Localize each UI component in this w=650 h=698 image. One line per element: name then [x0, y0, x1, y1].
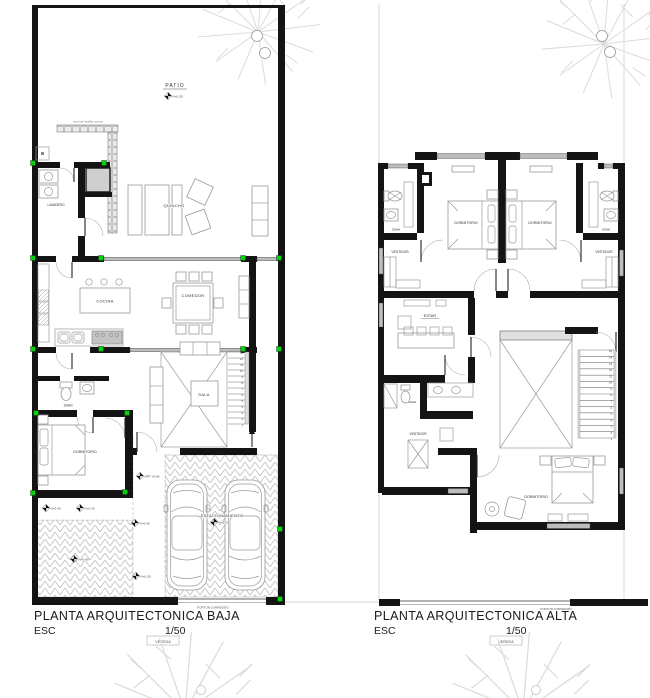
entry-walkway: [133, 437, 165, 597]
nightstand: [594, 456, 605, 465]
column-marker: [123, 490, 128, 495]
column-marker: [278, 597, 283, 602]
architectural-sheet: muro de ladrillo comun PATIO N+0.20 LAVA…: [0, 0, 650, 698]
column-marker: [31, 161, 36, 166]
window: [257, 257, 278, 261]
cabinet: [404, 300, 430, 306]
left-scale-value: 1/50: [165, 625, 186, 637]
chair: [189, 272, 199, 281]
chair: [162, 298, 171, 308]
tree-icon: [542, 0, 650, 99]
column-marker: [241, 256, 246, 261]
room-label-dormitorio-left: DORMITORIO: [454, 221, 477, 225]
toilet-tank: [401, 385, 410, 390]
room-label-sshh: SSHH: [64, 404, 74, 408]
column-marker: [99, 347, 104, 352]
void-parapet: [500, 331, 572, 340]
wall: [32, 5, 285, 8]
level-value: NPT +0.40: [145, 475, 160, 479]
stairs: 151413121110987654321: [580, 349, 614, 441]
level-value: N+0.40: [140, 522, 150, 526]
room-label-dormitorio-right: DORMITORIO: [528, 221, 551, 225]
column-marker: [31, 256, 36, 261]
level-marker-icon: [164, 92, 171, 99]
wall: [32, 5, 38, 605]
chair: [187, 179, 214, 206]
chair: [189, 325, 199, 334]
closet: [396, 280, 420, 288]
room-label-dormitorio-master: DORMITORIO: [524, 495, 547, 499]
brick-wall: [57, 125, 118, 132]
closet: [440, 428, 453, 441]
level-value: N+0.40: [51, 507, 61, 511]
bathroom-sink: [452, 387, 461, 394]
nightstand: [487, 250, 498, 259]
dresser: [548, 514, 562, 521]
round-table: [485, 502, 499, 516]
room-label-sala: SALA: [198, 392, 209, 397]
room-label-vestidor-right: VESTIDOR: [595, 250, 613, 254]
nightstand: [540, 456, 551, 465]
chair: [176, 325, 186, 334]
right-vereda-label: VEREDA: [498, 640, 514, 644]
level-value: N+0.20: [85, 507, 95, 511]
chair: [214, 298, 223, 308]
left-vereda-label: VEREDA: [155, 640, 171, 644]
chair: [202, 325, 212, 334]
dryer: [39, 185, 58, 198]
room-label-vestidor-left: VESTIDOR: [391, 250, 409, 254]
wall: [278, 5, 285, 605]
dresser: [452, 166, 474, 172]
nightstand: [38, 476, 48, 485]
window: [388, 164, 408, 168]
bathroom-sink: [80, 382, 94, 394]
dining-table: [173, 283, 213, 323]
window: [620, 250, 624, 276]
window: [604, 164, 613, 168]
title-block: PLANTA ARQUITECTONICA BAJA ESC 1/50 VERE…: [34, 609, 578, 645]
column-marker: [31, 491, 36, 496]
right-plan-upper-floor: DORMITORIO DORMITORIO SSHH SSHH VESTIDOR…: [285, 0, 650, 611]
level-value: N+0.20: [141, 575, 151, 579]
level-value: N+0.40: [79, 558, 89, 562]
window: [520, 154, 567, 159]
window: [620, 468, 624, 494]
sofa: [180, 342, 220, 355]
dresser: [568, 514, 588, 521]
sofa: [150, 367, 163, 423]
window: [379, 248, 383, 274]
tree-trunk-icon: [252, 31, 263, 42]
room-label-lavadero: LAVADERO: [48, 203, 65, 207]
chair: [176, 272, 186, 281]
window: [379, 303, 383, 327]
window: [448, 489, 468, 494]
room-label-quincho: QUINCHO: [164, 203, 185, 208]
chair: [185, 209, 211, 235]
column-marker: [31, 347, 36, 352]
wall-note: muro de ladrillo comun: [73, 120, 104, 124]
room-label-vestidor-mid: VESTIDOR: [409, 432, 427, 436]
vanity: [404, 182, 413, 227]
right-plan-title: PLANTA ARQUITECTONICA ALTA: [374, 609, 578, 623]
room-label-sshh-right: SSHH: [602, 228, 610, 232]
tree-icon: [198, 0, 321, 85]
car: [164, 480, 210, 590]
stove: [92, 331, 122, 344]
room-label-estacionamiento: ESTACIONAMIENTO: [201, 513, 244, 518]
stool: [116, 279, 122, 285]
column-marker: [277, 347, 282, 352]
column-marker: [277, 256, 282, 261]
right-scale-label: ESC: [374, 625, 396, 637]
column-marker: [102, 161, 107, 166]
stair-rail: [614, 350, 616, 438]
left-scale-label: ESC: [34, 625, 56, 637]
room-label-estar: ESTAR: [424, 314, 437, 318]
bathroom-sink: [434, 387, 443, 394]
room-label-comedor: COMEDOR: [182, 293, 205, 298]
armchair: [504, 496, 526, 520]
room-label-patio: PATIO: [165, 83, 184, 89]
left-plan-ground-floor: muro de ladrillo comun PATIO N+0.20 LAVA…: [31, 0, 321, 610]
dresser: [530, 166, 552, 172]
tree-trunk-icon: [597, 31, 608, 42]
level-value: N+0.20: [173, 95, 183, 99]
grill-counter: [86, 168, 110, 192]
vanity: [589, 182, 598, 227]
stair-rail: [245, 352, 249, 424]
nightstand: [38, 415, 48, 424]
tree-trunk-icon: [260, 48, 271, 59]
room-label-sshh-mid: SSHH: [408, 400, 416, 404]
column-marker: [241, 347, 246, 352]
nightstand: [487, 190, 498, 199]
window: [437, 154, 485, 159]
quincho-table: [145, 185, 169, 235]
bathroom-sink: [384, 209, 398, 221]
level-value: N+0.20: [219, 521, 229, 525]
nightstand: [506, 190, 517, 199]
right-scale-value: 1/50: [506, 625, 527, 637]
column-marker: [34, 411, 39, 416]
window: [547, 524, 590, 529]
column-marker: [278, 527, 283, 532]
room-label-dormitorio: DORMITORIO: [73, 450, 96, 454]
vanity: [428, 383, 473, 397]
stair-rail: [578, 350, 580, 438]
column-marker: [99, 256, 104, 261]
cabinet: [239, 276, 249, 318]
toilet: [61, 388, 71, 401]
stool: [86, 279, 92, 285]
washer: [39, 170, 58, 183]
bathroom-sink: [604, 209, 618, 221]
stool: [101, 279, 107, 285]
room-label-sshh-left: SSHH: [392, 228, 400, 232]
chair: [202, 272, 212, 281]
room-label-cocina: COCINA: [96, 299, 113, 304]
closet: [582, 280, 606, 288]
cabinet: [436, 300, 446, 306]
wall: [32, 597, 178, 605]
car: [222, 480, 268, 590]
floor-plan-drawing: muro de ladrillo comun PATIO N+0.20 LAVA…: [0, 0, 650, 698]
left-plan-title: PLANTA ARQUITECTONICA BAJA: [34, 609, 240, 623]
stairs: 13121110987654321: [228, 351, 245, 427]
column-marker: [125, 411, 130, 416]
window: [104, 257, 241, 261]
nightstand: [506, 250, 517, 259]
sofa: [252, 186, 268, 236]
tree-trunk-icon: [605, 47, 616, 58]
street-trees: [108, 632, 603, 698]
